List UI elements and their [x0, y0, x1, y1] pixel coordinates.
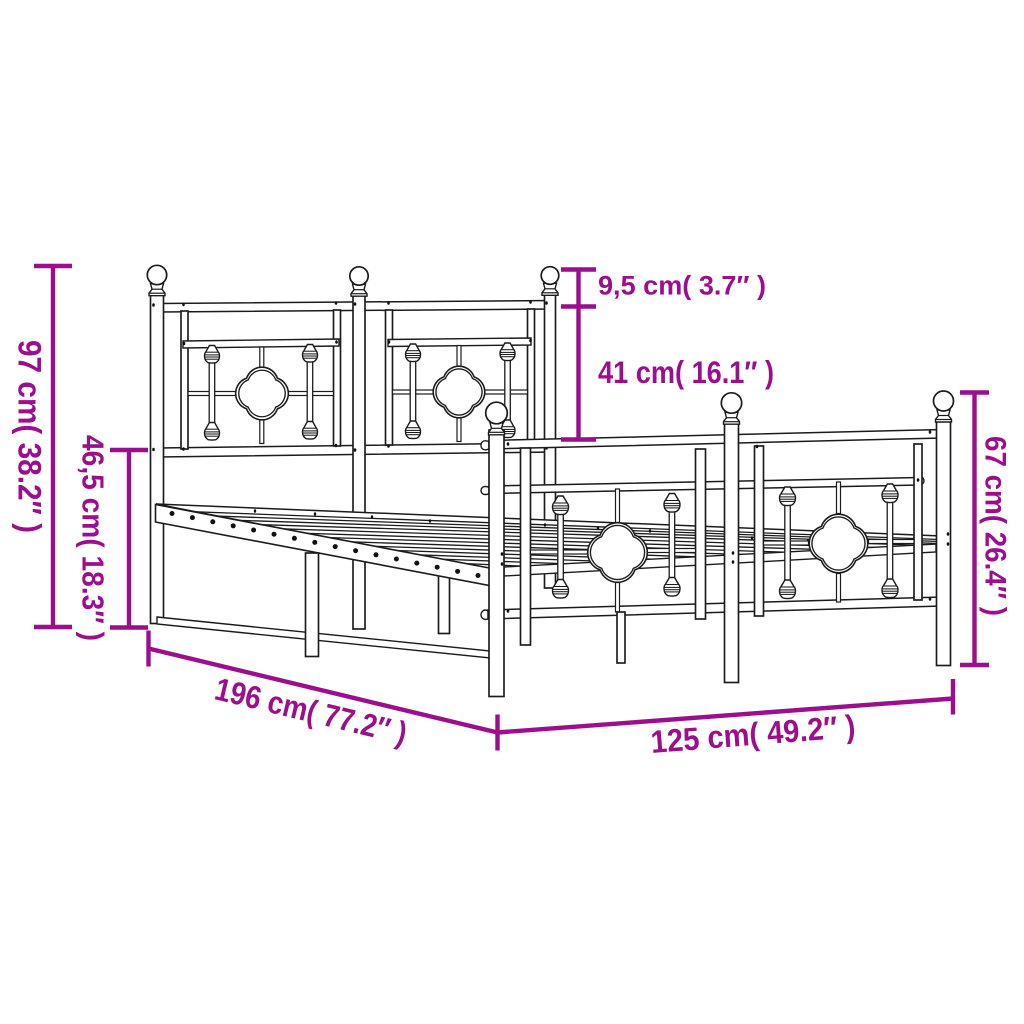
svg-text:125 cm( 49.2″ ): 125 cm( 49.2″ ): [649, 708, 856, 760]
svg-text:9,5 cm( 3.7″ ): 9,5 cm( 3.7″ ): [598, 271, 766, 301]
svg-text:67 cm( 26.4″ ): 67 cm( 26.4″ ): [979, 436, 1012, 616]
svg-text:97 cm( 38.2″ ): 97 cm( 38.2″ ): [12, 340, 48, 533]
svg-text:46,5 cm( 18.3″ ): 46,5 cm( 18.3″ ): [76, 435, 111, 641]
svg-text:41 cm( 16.1″ ): 41 cm( 16.1″ ): [598, 354, 774, 390]
svg-text:196 cm( 77.2″ ): 196 cm( 77.2″ ): [212, 671, 411, 752]
